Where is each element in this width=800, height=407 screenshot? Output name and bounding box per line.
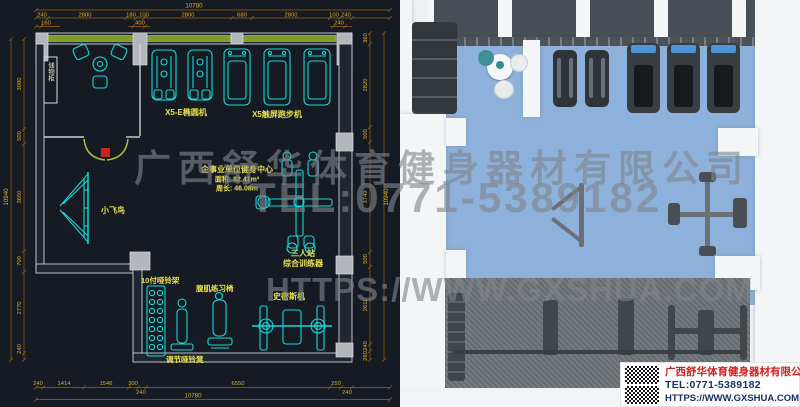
dumbbell-rack-label: 10付哑铃架 — [141, 275, 180, 285]
dim-label: 240 — [33, 381, 43, 387]
room-title: 企事业单位健身中心 — [200, 164, 273, 174]
wall-lower-left — [36, 264, 140, 273]
room-perimeter: 周长: 46.08m — [216, 184, 258, 193]
treadmill-3d — [707, 43, 740, 113]
column — [130, 252, 150, 270]
dim-label: 2800 — [182, 13, 195, 19]
dim-label: 400 — [135, 21, 145, 27]
fly-bird-machine: 小飞鸟 — [60, 172, 125, 244]
cad-svg: 储物柜 — [0, 0, 400, 407]
wall-left — [36, 44, 44, 270]
wall-right — [339, 44, 352, 354]
station-label-2: 综合训练器 — [283, 258, 324, 268]
dim-label: 680 — [237, 13, 247, 19]
dim-ticks — [34, 25, 352, 29]
contact-text: 广西舒华体育健身器材有限公司 TEL:0771-5389182 HTTPS://… — [665, 366, 799, 405]
treadmill — [224, 49, 250, 105]
screenshot-root: 储物柜 — [0, 0, 800, 407]
window-strip — [243, 36, 336, 42]
window-strip — [147, 36, 231, 42]
station-post-3d — [705, 180, 710, 250]
dim-label: 240 — [37, 13, 47, 19]
dim-label: 10780 — [184, 393, 202, 400]
dim-label: 500 — [363, 129, 369, 139]
wall-right — [755, 0, 800, 407]
station-pad-3d — [668, 203, 680, 225]
smith-bench-3d — [698, 310, 714, 355]
barbell-bar-3d — [452, 350, 742, 354]
smith-machine: 史密斯机 — [252, 291, 332, 350]
chair — [93, 76, 107, 88]
contact-url: HTTPS://WWW.GXSHUA.COM — [665, 392, 799, 405]
storage-label: 储物柜 — [47, 61, 55, 83]
adjustable-bench-label: 调节哑铃凳 — [166, 354, 204, 364]
wall-reception — [523, 40, 540, 117]
treadmill-3d — [667, 43, 700, 113]
smith-label: 史密斯机 — [273, 291, 305, 301]
table — [93, 57, 107, 71]
column — [336, 256, 353, 274]
table-item — [496, 61, 504, 69]
treadmill-3d — [627, 43, 660, 113]
dim-label: 10780 — [185, 3, 203, 10]
treadmill-label: X5触屏跑步机 — [252, 109, 302, 119]
dim-label: 10940 — [3, 188, 10, 206]
treadmill — [264, 49, 290, 105]
outside-bottom — [400, 388, 625, 407]
dim-label: 240 — [17, 344, 23, 354]
elliptical-machines: X5-E椭圆机 — [152, 50, 212, 117]
dim-label: 1414 — [58, 381, 72, 387]
storage-cabinet: 储物柜 — [44, 57, 57, 103]
dim-label: 250 — [331, 381, 341, 387]
dim-label: 100 — [139, 13, 149, 19]
door-leaf — [107, 139, 128, 160]
dim-label: 10940 — [383, 188, 390, 206]
chair — [72, 44, 90, 61]
chair-teal — [478, 50, 494, 66]
dim-label: 240 — [136, 390, 146, 396]
chair-white — [494, 80, 514, 99]
dumbbell-rack-3d — [448, 293, 465, 381]
dim-label: 2820 — [363, 79, 369, 92]
dim-label: 240 — [341, 13, 351, 19]
station-label-1: 三人站 — [291, 248, 315, 258]
contact-tel: TEL:0771-5389182 — [665, 379, 799, 392]
table-item — [98, 62, 103, 67]
dim-label: 240 — [334, 21, 344, 27]
column — [336, 133, 353, 151]
dim-label: 1546 — [100, 381, 113, 387]
dim-label: 2770 — [17, 302, 23, 315]
fly-bird-label: 小飞鸟 — [100, 205, 125, 215]
cad-floorplan: 储物柜 — [0, 0, 400, 407]
dim-label: 6550 — [232, 381, 245, 387]
dim-label: 260 — [363, 351, 369, 361]
column — [336, 343, 353, 357]
dim-label: 2611 — [363, 299, 369, 311]
elliptical-label: X5-E椭圆机 — [165, 107, 207, 117]
dim-label: 240 — [363, 341, 369, 351]
wall-outside-left — [400, 114, 446, 407]
reception-table — [72, 44, 128, 88]
room-info: 企事业单位健身中心 面积: 82.41m² 周长: 46.08m — [200, 164, 273, 193]
elliptical-3d — [553, 50, 577, 107]
bench-3d — [543, 300, 558, 355]
wall — [400, 0, 412, 130]
pillar — [718, 128, 758, 156]
dim-label: 700 — [17, 256, 23, 266]
contact-card: 广西舒华体育健身器材有限公司 TEL:0771-5389182 HTTPS://… — [620, 362, 800, 407]
double-door — [84, 139, 128, 160]
render-view — [400, 0, 800, 407]
elliptical — [188, 50, 212, 100]
station-pad-3d — [699, 246, 716, 256]
contact-company: 广西舒华体育健身器材有限公司 — [665, 366, 799, 379]
treadmill — [304, 49, 330, 105]
dim-label: 500 — [363, 254, 369, 264]
dim-label: 300 — [128, 381, 138, 387]
pillar — [446, 118, 466, 146]
dim-label: 240 — [342, 390, 352, 396]
qr-code — [625, 366, 659, 404]
ab-bench-3d — [618, 298, 634, 355]
dim-label: 180 — [126, 13, 136, 19]
dim-label: 360 — [363, 33, 369, 43]
dim-label: 500 — [17, 131, 23, 141]
window-band — [428, 0, 768, 38]
chair — [110, 44, 128, 61]
station-pad-3d — [733, 198, 747, 228]
ab-bench-label: 腹肌练习椅 — [195, 283, 234, 293]
elliptical — [152, 50, 176, 100]
dim-label: 100 — [329, 13, 339, 19]
dim-label: 2800 — [285, 13, 298, 19]
ab-bench: 腹肌练习椅 — [195, 283, 234, 348]
dim-label: 3650 — [17, 191, 23, 204]
dim-label: 3749 — [363, 191, 369, 204]
adjustable-bench: 调节哑铃凳 — [166, 299, 204, 364]
dim-label: 160 — [41, 21, 51, 27]
dim-label: 2800 — [79, 13, 92, 19]
elliptical-3d — [585, 50, 609, 107]
station-pad-3d — [699, 172, 716, 182]
treadmill-machines: X5触屏跑步机 — [224, 49, 330, 119]
door-marker — [101, 148, 110, 157]
chair-white — [510, 54, 528, 72]
dim-label: 3080 — [17, 78, 23, 91]
room-area: 面积: 82.41m² — [215, 175, 260, 184]
window-strip — [48, 36, 133, 42]
column — [231, 33, 243, 44]
storage-cabinet-3d — [412, 22, 457, 114]
crossover-post-3d — [579, 183, 584, 247]
